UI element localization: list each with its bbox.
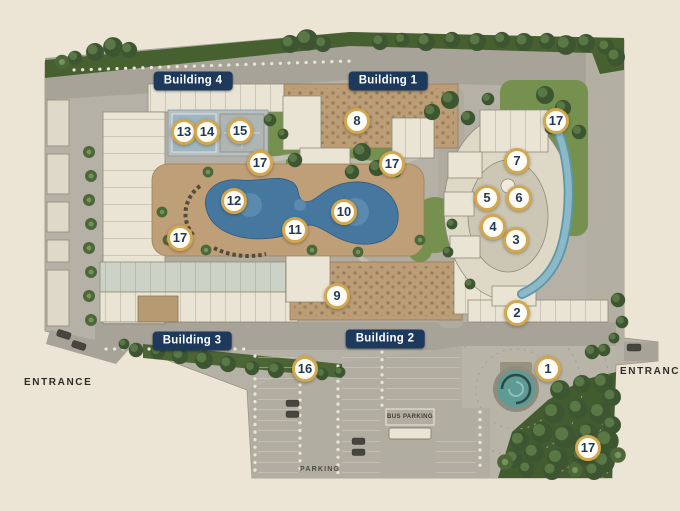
map-marker-5[interactable]: 5 — [474, 185, 500, 211]
entrance-left-label: ENTRANCE — [24, 377, 92, 388]
map-marker-17[interactable]: 17 — [379, 151, 405, 177]
map-marker-10[interactable]: 10 — [331, 199, 357, 225]
map-marker-12[interactable]: 12 — [221, 188, 247, 214]
map-marker-17[interactable]: 17 — [575, 435, 601, 461]
map-marker-2[interactable]: 2 — [504, 300, 530, 326]
map-marker-6[interactable]: 6 — [506, 185, 532, 211]
overlay-layer: ENTRANCE ENTRANCE PARKING BUS PARKING 12… — [0, 0, 680, 511]
building-label-building-4: Building 4 — [154, 72, 233, 91]
entrance-right-label: ENTRANCE — [620, 366, 680, 377]
map-marker-15[interactable]: 15 — [227, 118, 253, 144]
map-marker-17[interactable]: 17 — [167, 225, 193, 251]
building-label-building-2: Building 2 — [346, 330, 425, 349]
map-marker-4[interactable]: 4 — [480, 214, 506, 240]
site-plan-map: ENTRANCE ENTRANCE PARKING BUS PARKING 12… — [0, 0, 680, 511]
map-marker-7[interactable]: 7 — [504, 148, 530, 174]
map-marker-8[interactable]: 8 — [344, 108, 370, 134]
map-marker-14[interactable]: 14 — [194, 119, 220, 145]
map-marker-9[interactable]: 9 — [324, 283, 350, 309]
building-label-building-3: Building 3 — [153, 332, 232, 351]
map-marker-17[interactable]: 17 — [543, 108, 569, 134]
building-label-building-1: Building 1 — [349, 72, 428, 91]
map-marker-17[interactable]: 17 — [247, 150, 273, 176]
map-marker-1[interactable]: 1 — [535, 356, 561, 382]
map-marker-16[interactable]: 16 — [292, 356, 318, 382]
map-marker-11[interactable]: 11 — [282, 217, 308, 243]
parking-label: PARKING — [300, 466, 340, 473]
bus-parking-label: BUS PARKING — [386, 414, 434, 420]
map-marker-3[interactable]: 3 — [503, 227, 529, 253]
